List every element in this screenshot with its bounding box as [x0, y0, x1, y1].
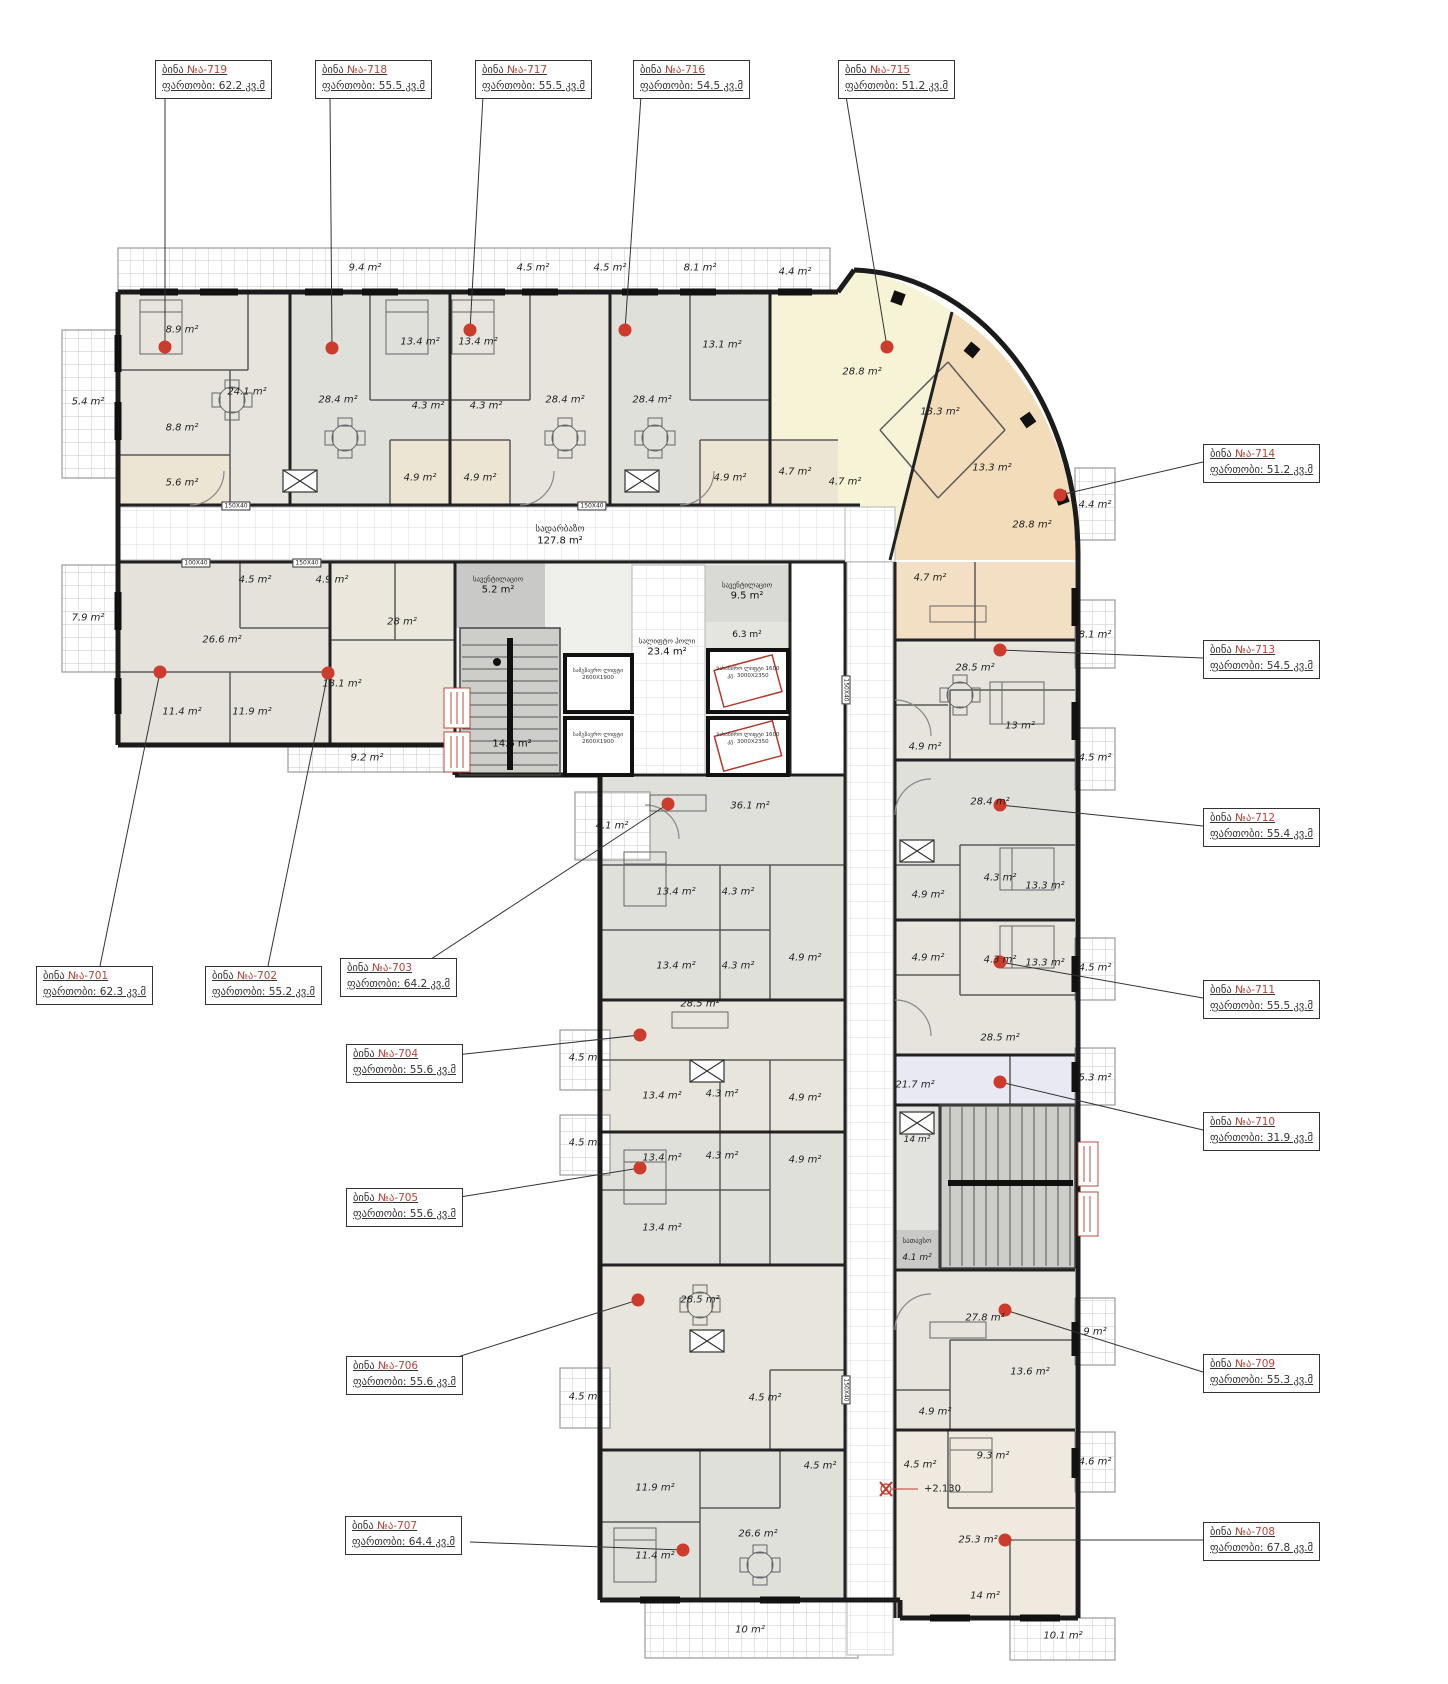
apartment-marker-dot — [634, 1029, 647, 1042]
apt-callout-title: ბინა №ა-718 — [322, 63, 425, 79]
room-area-label: 8.8 m² — [166, 423, 199, 434]
apt-callout-705: ბინა №ა-705ფართობი: 55.6 კვ.მ — [346, 1188, 463, 1227]
room-area-label: 24.1 m² — [227, 387, 266, 398]
room-area-label: 28.5 m² — [680, 1295, 719, 1306]
room-area-label: 13 m² — [1005, 721, 1035, 732]
apt-callout-708: ბინა №ა-708ფართობი: 67.8 კვ.მ — [1203, 1522, 1320, 1561]
room-area-label: 4.9 m² — [714, 473, 747, 484]
apt-callout-area: ფართობი: 55.6 კვ.მ — [353, 1063, 456, 1079]
vent-shaft-name: სავენტილაციო — [722, 583, 772, 591]
room-area-label: 14 m² — [970, 1591, 1000, 1602]
room-area-label: 36.1 m² — [730, 801, 769, 812]
lobby-label: სადარბაზო 127.8 m² — [535, 526, 584, 547]
apt-callout-area: ფართობი: 64.4 კვ.მ — [352, 1535, 455, 1551]
room-area-label: 4.7 m² — [779, 467, 812, 478]
apartment-marker-dot — [464, 324, 477, 337]
room-area-label: 28.5 m² — [955, 663, 994, 674]
room-area-label: 14 m² — [904, 1135, 931, 1145]
apt-callout-716: ბინა №ა-716ფართობი: 54.5 კვ.მ — [633, 60, 750, 99]
apt-callout-701: ბინა №ა-701ფართობი: 62.3 კვ.მ — [36, 966, 153, 1005]
duct-size-tag: 100X40 — [181, 559, 210, 568]
room-area-label: 4.9 m² — [789, 953, 822, 964]
room-area-label: 4.9 m² — [789, 1155, 822, 1166]
room-area-label: 4.3 m² — [722, 887, 755, 898]
apt-callout-title: ბინა №ა-717 — [482, 63, 585, 79]
apt-callout-area: ფართობი: 55.4 კვ.მ — [1210, 827, 1313, 843]
apt-callout-area: ფართობი: 54.5 კვ.მ — [1210, 659, 1313, 675]
room-area-label: 13.4 m² — [656, 887, 695, 898]
room-area-label: 13.4 m² — [642, 1153, 681, 1164]
apartment-marker-dot — [677, 1544, 690, 1557]
room-area-label: 9.2 m² — [351, 753, 384, 764]
apt-callout-title: ბინა №ა-714 — [1210, 447, 1313, 463]
room-area-label: 13.1 m² — [322, 679, 361, 690]
room-area-label: 4.3 m² — [412, 401, 445, 412]
room-area-label: 4.5 m² — [904, 1460, 937, 1471]
apartment-marker-dot — [632, 1294, 645, 1307]
room-area-label: 13.6 m² — [1010, 1367, 1049, 1378]
apt-callout-706: ბინა №ა-706ფართობი: 55.6 კვ.მ — [346, 1356, 463, 1395]
apt-callout-title: ბინა №ა-709 — [1210, 1357, 1313, 1373]
room-area-label: 11.4 m² — [162, 707, 201, 718]
apartment-marker-dot — [999, 1534, 1012, 1547]
room-area-label: 28.4 m² — [632, 395, 671, 406]
room-area-label: 26.6 m² — [202, 635, 241, 646]
room-area-label: 7.9 m² — [72, 613, 105, 624]
duct-size-tag: 150X40 — [221, 502, 250, 511]
lobby-area: 127.8 m² — [535, 535, 584, 546]
apt-callout-area: ფართობი: 51.2 კვ.მ — [1210, 463, 1313, 479]
apt-callout-title: ბინა №ა-702 — [212, 969, 315, 985]
apt-callout-713: ბინა №ა-713ფართობი: 54.5 კვ.მ — [1203, 640, 1320, 679]
room-area-label: 4.4 m² — [1079, 500, 1112, 511]
apt-callout-title: ბინა №ა-713 — [1210, 643, 1313, 659]
room-area-label: 26.6 m² — [738, 1529, 777, 1540]
room-area-label: 10.1 m² — [1043, 1631, 1082, 1642]
apt-callout-title: ბინა №ა-711 — [1210, 983, 1313, 999]
room-area-label: 4.3 m² — [706, 1151, 739, 1162]
room-area-label: 4.9 m² — [316, 575, 349, 586]
apt-callout-title: ბინა №ა-701 — [43, 969, 146, 985]
room-area-label: 28.4 m² — [545, 395, 584, 406]
room-area-label: 4.3 m² — [470, 401, 503, 412]
apt-callout-area: ფართობი: 55.6 კვ.მ — [353, 1375, 456, 1391]
apt-callout-title: ბინა №ა-719 — [162, 63, 265, 79]
apt-callout-title: ბინა №ა-710 — [1210, 1115, 1313, 1131]
lift-hall-label: სალიფტო ჰოლი 23.4 m² — [639, 639, 696, 658]
apt-callout-title: ბინა №ა-705 — [353, 1191, 456, 1207]
apt-callout-title: ბინა №ა-704 — [353, 1047, 456, 1063]
apt-callout-area: ფართობი: 31.9 კვ.მ — [1210, 1131, 1313, 1147]
apt-callout-area: ფართობი: 55.5 კვ.მ — [482, 79, 585, 95]
room-area-label: 28 m² — [387, 617, 417, 628]
apt-callout-710: ბინა №ა-710ფართობი: 31.9 კვ.მ — [1203, 1112, 1320, 1151]
duct-size-tag: 150X40 — [577, 502, 606, 511]
apartment-marker-dot — [326, 342, 339, 355]
room-area-label: 13.1 m² — [702, 340, 741, 351]
room-area-label: 4.7 m² — [914, 573, 947, 584]
apt-callout-area: ფართობი: 62.3 კვ.მ — [43, 985, 146, 1001]
room-area-label: 4.9 m² — [404, 473, 437, 484]
room-area-label: 4.5 m² — [804, 1461, 837, 1472]
room-area-label: 4.5 m² — [594, 263, 627, 274]
stairs-area: 14.6 m² — [492, 739, 531, 750]
apt-callout-707: ბინა №ა-707ფართობი: 64.4 კვ.მ — [345, 1516, 462, 1555]
stairs-label: 14.6 m² — [492, 739, 531, 750]
apt-callout-area: ფართობი: 55.2 კვ.მ — [212, 985, 315, 1001]
apartment-marker-dot — [159, 341, 172, 354]
floor-plan: ბინა №ა-719ფართობი: 62.2 კვ.მ ბინა №ა-71… — [0, 0, 1448, 1684]
room-area-label: 10 m² — [735, 1625, 765, 1636]
room-area-label: 28.4 m² — [970, 797, 1009, 808]
small-hall-label: 6.3 m² — [732, 630, 762, 640]
apartment-marker-dot — [662, 798, 675, 811]
apt-callout-area: ფართობი: 55.5 კვ.მ — [322, 79, 425, 95]
room-area-label: 4.5 m² — [1079, 753, 1112, 764]
apartment-marker-dot — [994, 644, 1007, 657]
room-area-label: 4.5 m² — [517, 263, 550, 274]
room-area-label: 28.5 m² — [680, 999, 719, 1010]
duct-size-tag: 150X40 — [292, 559, 321, 568]
apt-callout-715: ბინა №ა-715ფართობი: 51.2 კვ.მ — [838, 60, 955, 99]
apt-callout-area: ფართობი: 55.3 კვ.მ — [1210, 1373, 1313, 1389]
apt-callout-719: ბინა №ა-719ფართობი: 62.2 კვ.მ — [155, 60, 272, 99]
apt-callout-title: ბინა №ა-706 — [353, 1359, 456, 1375]
apt-callout-704: ბინა №ა-704ფართობი: 55.6 კვ.მ — [346, 1044, 463, 1083]
room-area-label: 8.1 m² — [684, 263, 717, 274]
fire-elevator-label: სახანძრო ლიფტი 1600 კგ. 3000X2350 — [712, 666, 784, 680]
room-area-label: 4.9 m² — [912, 890, 945, 901]
room-area-label: 5.6 m² — [166, 478, 199, 489]
room-area-label: 13.4 m² — [642, 1223, 681, 1234]
room-area-label: 4.4 m² — [779, 267, 812, 278]
room-area-label: 4.6 m² — [1079, 1457, 1112, 1468]
apartment-marker-dot — [881, 341, 894, 354]
apt-callout-title: ბინა №ა-703 — [347, 961, 450, 977]
vent-shaft-area: 9.5 m² — [722, 590, 772, 601]
room-area-label: 13.3 m² — [920, 407, 959, 418]
room-area-label: 13.3 m² — [1025, 958, 1064, 969]
elevator-label: სამგზავრო ლიფტი 2600X1900 — [567, 668, 629, 682]
apt-callout-title: ბინა №ა-715 — [845, 63, 948, 79]
room-area-label: 13.3 m² — [1025, 881, 1064, 892]
room-area-label: 13.4 m² — [458, 337, 497, 348]
apt-callout-area: ფართობი: 55.6 კვ.მ — [353, 1207, 456, 1223]
room-area-label: 27.8 m² — [965, 1313, 1004, 1324]
room-area-label: 4.3 m² — [722, 961, 755, 972]
apt-callout-title: ბინა №ა-716 — [640, 63, 743, 79]
lobby-name: სადარბაზო — [535, 526, 584, 536]
apt-callout-712: ბინა №ა-712ფართობი: 55.4 კვ.მ — [1203, 808, 1320, 847]
room-area-label: 13.3 m² — [972, 463, 1011, 474]
apt-callout-area: ფართობი: 55.5 კვ.მ — [1210, 999, 1313, 1015]
room-area-label: 28.8 m² — [842, 367, 881, 378]
room-area-label: 9 m² — [1083, 1327, 1106, 1338]
room-area-label: 11.4 m² — [635, 1551, 674, 1562]
apt-callout-area: ფართობი: 51.2 კვ.მ — [845, 79, 948, 95]
room-area-label: 8.1 m² — [1079, 630, 1112, 641]
vent-shaft-label: სავენტილაციო 9.5 m² — [722, 583, 772, 602]
apt-callout-709: ბინა №ა-709ფართობი: 55.3 კვ.მ — [1203, 1354, 1320, 1393]
room-area-label: 5.4 m² — [72, 397, 105, 408]
lift-hall-area: 23.4 m² — [639, 646, 696, 657]
room-area-label: 25.3 m² — [958, 1535, 997, 1546]
apt-callout-718: ბინა №ა-718ფართობი: 55.5 კვ.მ — [315, 60, 432, 99]
apt-callout-area: ფართობი: 67.8 კვ.მ — [1210, 1541, 1313, 1557]
elevator-label: სამგზავრო ლიფტი 2600X1900 — [567, 732, 629, 746]
storage-name: სათავსო — [902, 1238, 931, 1246]
apt-callout-711: ბინა №ა-711ფართობი: 55.5 კვ.მ — [1203, 980, 1320, 1019]
apt-callout-area: ფართობი: 54.5 კვ.მ — [640, 79, 743, 95]
apt-callout-title: ბინა №ა-707 — [352, 1519, 455, 1535]
room-area-label: 4.9 m² — [912, 953, 945, 964]
duct-size-tag: 150X40 — [842, 1375, 851, 1404]
room-area-label: 28.8 m² — [1012, 520, 1051, 531]
apt-callout-title: ბინა №ა-712 — [1210, 811, 1313, 827]
room-area-label: 4.5 m² — [239, 575, 272, 586]
lift-hall-name: სალიფტო ჰოლი — [639, 639, 696, 647]
room-area-label: 5.3 m² — [1079, 1073, 1112, 1084]
apartment-marker-dot — [1054, 489, 1067, 502]
apartment-marker-dot — [994, 1076, 1007, 1089]
room-area-label: 11.9 m² — [635, 1483, 674, 1494]
room-area-label: 9.4 m² — [349, 263, 382, 274]
apt-callout-717: ბინა №ა-717ფართობი: 55.5 კვ.მ — [475, 60, 592, 99]
level-mark: +2.130 — [924, 1484, 961, 1495]
room-area-label: 4.1 m² — [596, 821, 629, 832]
storage-label: სათავსო — [902, 1238, 931, 1246]
vent-room-label: სავენტილაციო 5.2 m² — [473, 577, 523, 596]
fire-elevator-label: სახანძრო ლიფტი 1600 კგ. 3000X2350 — [712, 732, 784, 746]
apt-callout-area: ფართობი: 64.2 კვ.მ — [347, 977, 450, 993]
apt-callout-title: ბინა №ა-708 — [1210, 1525, 1313, 1541]
apt-callout-703: ბინა №ა-703ფართობი: 64.2 კვ.მ — [340, 958, 457, 997]
apartment-marker-dot — [619, 324, 632, 337]
vent-room-name: სავენტილაციო — [473, 577, 523, 585]
room-area-label: 13.4 m² — [656, 961, 695, 972]
room-area-label: 4.5 m² — [569, 1053, 602, 1064]
room-area-label: 28.4 m² — [318, 395, 357, 406]
apt-callout-714: ბინა №ა-714ფართობი: 51.2 კვ.მ — [1203, 444, 1320, 483]
room-area-label: 4.9 m² — [789, 1093, 822, 1104]
room-area-label: 4.9 m² — [909, 742, 942, 753]
apt-callout-702: ბინა №ა-702ფართობი: 55.2 კვ.მ — [205, 966, 322, 1005]
room-area-label: 4.7 m² — [829, 477, 862, 488]
room-area-label: 4.5 m² — [569, 1392, 602, 1403]
room-area-label: 4.3 m² — [984, 873, 1017, 884]
room-area-label: 13.4 m² — [642, 1091, 681, 1102]
room-area-label: 4.3 m² — [706, 1089, 739, 1100]
vent-room-area: 5.2 m² — [473, 584, 523, 595]
room-area-label: 4.9 m² — [464, 473, 497, 484]
room-area-label: 4.5 m² — [1079, 963, 1112, 974]
room-area-label: 21.7 m² — [895, 1080, 934, 1091]
room-area-label: 4.5 m² — [749, 1393, 782, 1404]
room-area-label: 4.1 m² — [902, 1253, 932, 1263]
room-area-label: 9.3 m² — [977, 1451, 1010, 1462]
apartment-marker-dot — [154, 666, 167, 679]
apt-callout-area: ფართობი: 62.2 კვ.მ — [162, 79, 265, 95]
small-hall-area: 6.3 m² — [732, 630, 762, 640]
room-area-label: 4.9 m² — [919, 1407, 952, 1418]
room-area-label: 28.5 m² — [980, 1033, 1019, 1044]
room-area-label: 11.9 m² — [232, 707, 271, 718]
room-area-label: 8.9 m² — [166, 325, 199, 336]
room-area-label: 4.3 m² — [984, 955, 1017, 966]
room-area-label: 13.4 m² — [400, 337, 439, 348]
duct-size-tag: 150X40 — [842, 675, 851, 704]
room-area-label: 4.5 m² — [569, 1138, 602, 1149]
